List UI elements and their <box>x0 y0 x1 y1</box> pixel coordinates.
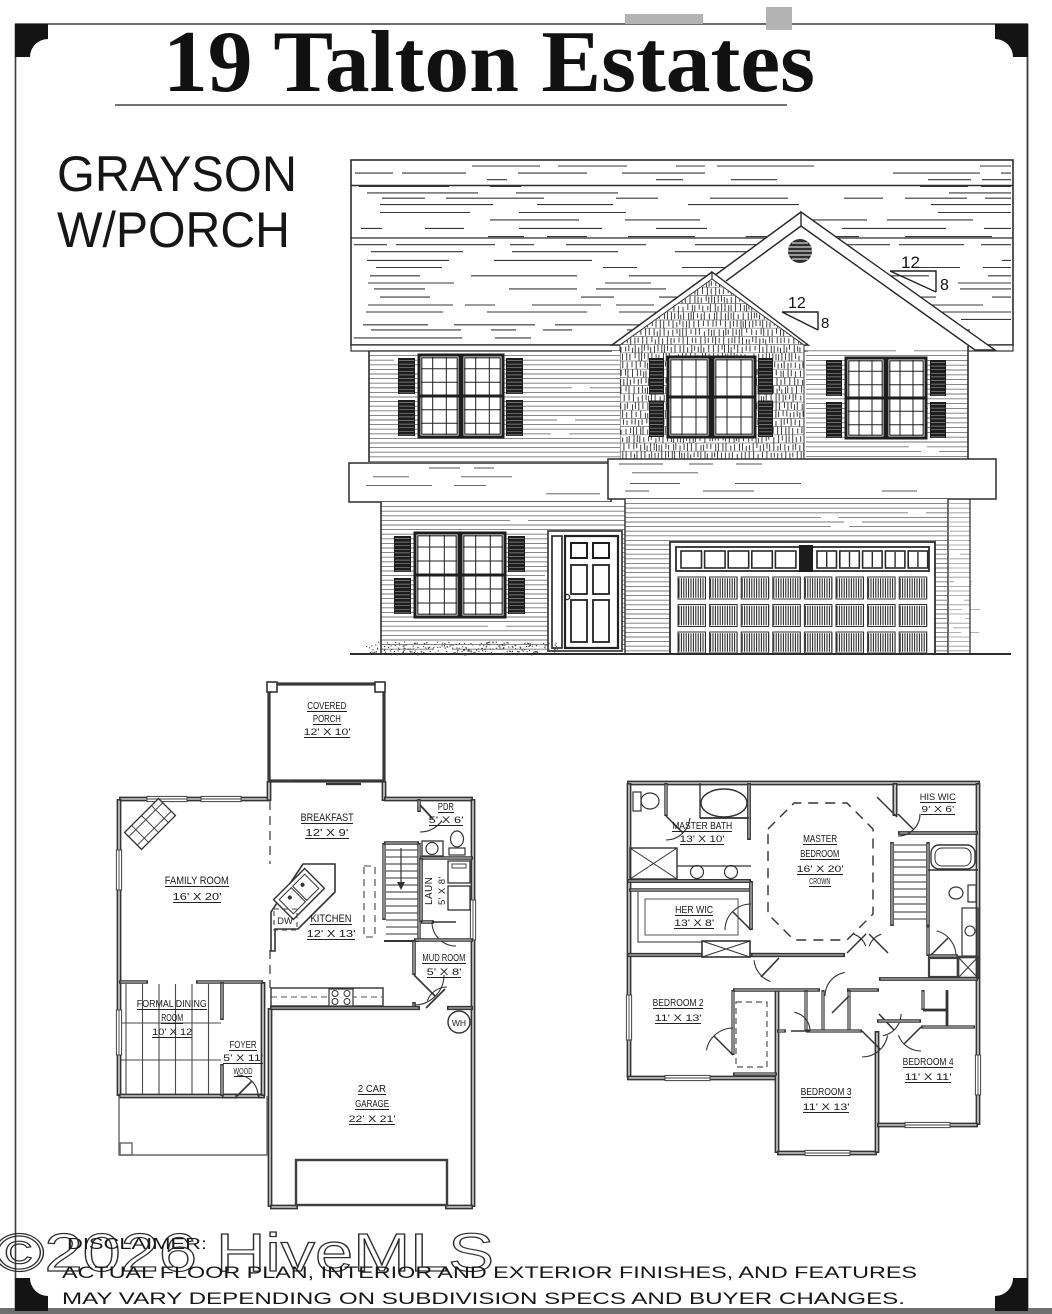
svg-text:W/PORCH: W/PORCH <box>57 202 290 258</box>
svg-text:BEDROOM 3: BEDROOM 3 <box>801 1087 852 1098</box>
svg-text:12' X 10': 12' X 10' <box>304 726 351 737</box>
svg-text:WH: WH <box>452 1018 466 1028</box>
svg-text:COVERED: COVERED <box>307 701 346 712</box>
svg-text:2 CAR: 2 CAR <box>358 1084 386 1095</box>
svg-text:LAUN: LAUN <box>424 877 435 905</box>
svg-text:MUD ROOM: MUD ROOM <box>422 953 465 964</box>
svg-text:GARAGE: GARAGE <box>355 1099 389 1110</box>
svg-text:22' X 21': 22' X 21' <box>349 1113 396 1124</box>
svg-text:16' X 20': 16' X 20' <box>797 863 844 874</box>
svg-text:BREAKFAST: BREAKFAST <box>301 812 354 824</box>
svg-text:11' X 13': 11' X 13' <box>655 1012 702 1023</box>
svg-text:ROOM: ROOM <box>161 1013 183 1024</box>
svg-text:DW: DW <box>277 916 293 927</box>
svg-text:BEDROOM 4: BEDROOM 4 <box>903 1057 954 1068</box>
svg-text:MASTER BATH: MASTER BATH <box>672 821 732 832</box>
svg-text:WOOD: WOOD <box>234 1066 253 1076</box>
svg-text:8: 8 <box>821 315 829 332</box>
svg-text:5' X 6': 5' X 6' <box>429 815 464 825</box>
svg-text:11' X 13': 11' X 13' <box>803 1101 850 1112</box>
svg-text:5' X 8': 5' X 8' <box>437 876 448 905</box>
svg-text:BEDROOM 2: BEDROOM 2 <box>653 998 704 1009</box>
svg-text:12: 12 <box>788 295 806 312</box>
svg-text:DISCLAIMER:: DISCLAIMER: <box>67 1236 207 1253</box>
svg-text:FORMAL DINING: FORMAL DINING <box>137 999 207 1010</box>
svg-text:10' X 12: 10' X 12 <box>152 1027 192 1037</box>
svg-text:19 Talton Estates: 19 Talton Estates <box>163 14 815 111</box>
svg-text:KITCHEN: KITCHEN <box>311 913 352 925</box>
svg-text:16' X 20': 16' X 20' <box>173 892 222 903</box>
svg-text:5' X 8': 5' X 8' <box>427 967 462 977</box>
svg-text:11' X 11': 11' X 11' <box>905 1071 952 1082</box>
svg-text:13' X 10': 13' X 10' <box>680 834 725 844</box>
svg-text:5' X 11': 5' X 11' <box>223 1053 263 1063</box>
svg-text:MAY VARY DEPENDING ON SUBDIVIS: MAY VARY DEPENDING ON SUBDIVISION SPECS … <box>62 1290 905 1308</box>
svg-text:12' X 9': 12' X 9' <box>305 828 348 839</box>
svg-text:FOYER: FOYER <box>230 1040 257 1051</box>
svg-text:BEDROOM: BEDROOM <box>800 849 839 860</box>
svg-text:GRAYSON: GRAYSON <box>57 146 297 202</box>
svg-text:HIS WIC: HIS WIC <box>920 791 956 802</box>
svg-text:HER WIC: HER WIC <box>675 905 713 916</box>
svg-text:13' X 8': 13' X 8' <box>674 918 714 928</box>
svg-text:9' X 6': 9' X 6' <box>921 804 954 814</box>
svg-text:8: 8 <box>940 277 949 294</box>
svg-text:PDR: PDR <box>438 802 454 813</box>
svg-text:12: 12 <box>901 253 920 272</box>
svg-text:12' X 13': 12' X 13' <box>307 929 356 940</box>
svg-text:PORCH: PORCH <box>313 714 341 725</box>
svg-text:ACTUAL FLOOR PLAN, INTERIOR AN: ACTUAL FLOOR PLAN, INTERIOR AND EXTERIOR… <box>62 1264 917 1282</box>
svg-text:CROWN: CROWN <box>809 877 830 886</box>
svg-text:FAMILY ROOM: FAMILY ROOM <box>165 875 229 887</box>
svg-text:MASTER: MASTER <box>803 834 837 845</box>
